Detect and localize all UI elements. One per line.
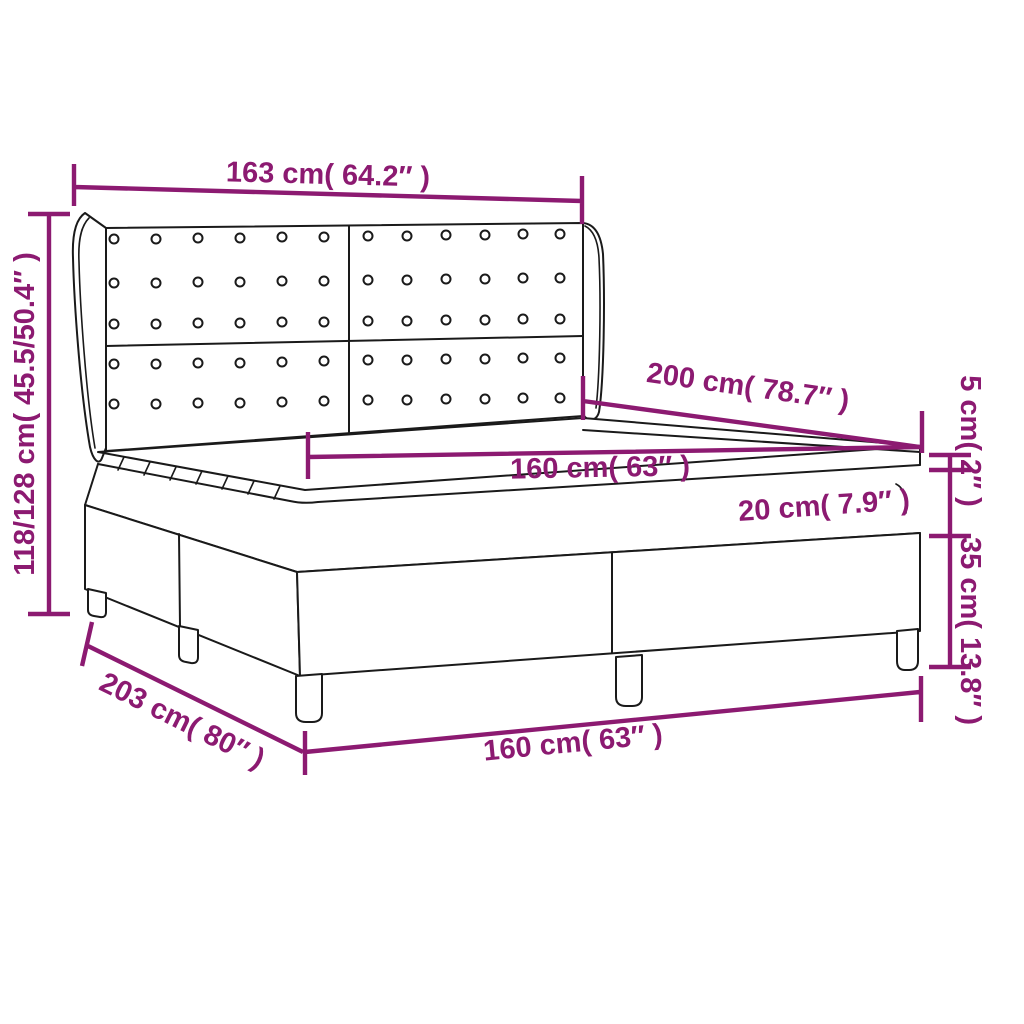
leg-left-middle <box>179 626 198 663</box>
bed-drawing <box>73 213 920 722</box>
base-front-face <box>297 533 920 676</box>
headboard-right-wing <box>583 223 604 420</box>
overall-height-label: 118/128 cm( 45.5/50.4″ ) <box>9 252 41 575</box>
length-top-label: 200 cm( 78.7″ ) <box>645 357 852 417</box>
base-height-label: 35 cm( 13.8″ ) <box>954 537 986 725</box>
width-mattress-label: 160 cm( 63″ ) <box>510 450 690 485</box>
dimension-diagram: 163 cm( 64.2″ ) 118/128 cm( 45.5/50.4″ )… <box>0 0 1024 1024</box>
topper-thickness-label: 5 cm( 2″ ) <box>954 375 986 507</box>
dim-overall-height: 118/128 cm( 45.5/50.4″ ) <box>9 214 70 614</box>
box-spring-base <box>85 505 920 722</box>
dim-width-base: 160 cm( 63″ ) <box>305 676 921 768</box>
bed-dimension-drawing: 163 cm( 64.2″ ) 118/128 cm( 45.5/50.4″ )… <box>0 0 1024 1024</box>
dim-right-heights: 5 cm( 2″ ) 35 cm( 13.8″ ) <box>929 375 986 725</box>
mattress-left-edge <box>85 464 98 505</box>
headboard-width-label: 163 cm( 64.2″ ) <box>226 156 431 193</box>
base-left-seam <box>179 534 180 626</box>
mattress-thickness-label: 20 cm( 7.9″ ) <box>737 484 911 528</box>
headboard-left-wing <box>73 213 106 462</box>
leg-foot-right <box>897 629 918 670</box>
dim-headboard-width: 163 cm( 64.2″ ) <box>74 156 582 224</box>
leg-front-middle <box>616 655 642 706</box>
dim-mattress-thickness: 20 cm( 7.9″ ) <box>737 484 911 528</box>
leg-foot-left <box>296 674 322 722</box>
leg-head-left <box>88 589 106 617</box>
